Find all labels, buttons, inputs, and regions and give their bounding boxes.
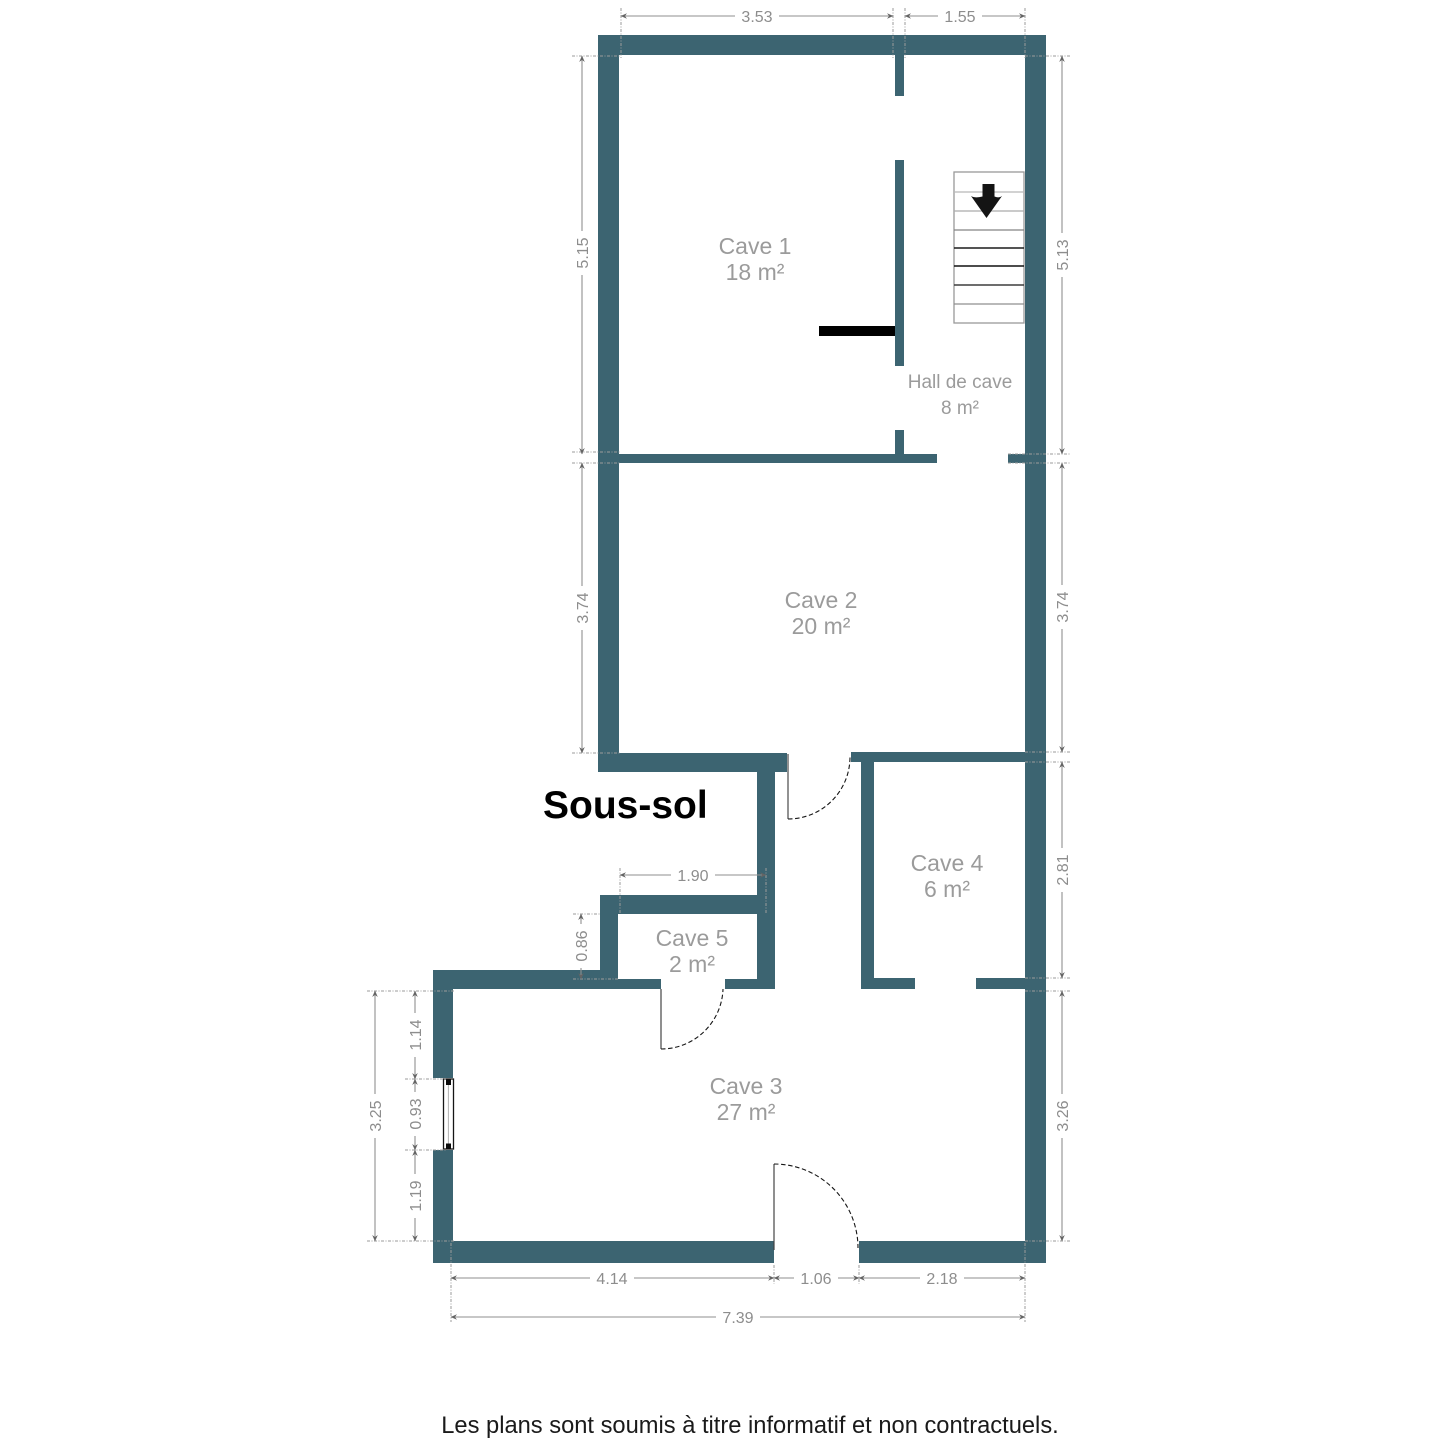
svg-text:3.74: 3.74 bbox=[575, 592, 592, 623]
svg-text:6 m²: 6 m² bbox=[924, 876, 970, 902]
svg-text:Sous-sol: Sous-sol bbox=[543, 784, 708, 827]
svg-text:3.26: 3.26 bbox=[1055, 1100, 1072, 1131]
svg-text:7.39: 7.39 bbox=[722, 1310, 753, 1327]
svg-text:2.18: 2.18 bbox=[926, 1271, 957, 1288]
svg-text:3.25: 3.25 bbox=[368, 1100, 385, 1131]
svg-text:3.53: 3.53 bbox=[741, 9, 772, 26]
svg-text:1.90: 1.90 bbox=[677, 868, 708, 885]
svg-text:1.14: 1.14 bbox=[408, 1019, 425, 1050]
svg-text:Cave 3: Cave 3 bbox=[710, 1073, 783, 1099]
svg-text:1.19: 1.19 bbox=[408, 1180, 425, 1211]
svg-text:Hall de cave: Hall de cave bbox=[908, 372, 1013, 393]
svg-text:Cave 5: Cave 5 bbox=[656, 925, 729, 951]
svg-text:5.15: 5.15 bbox=[575, 237, 592, 268]
svg-text:0.93: 0.93 bbox=[408, 1098, 425, 1129]
svg-text:Cave 1: Cave 1 bbox=[719, 233, 792, 259]
svg-text:8 m²: 8 m² bbox=[941, 398, 979, 419]
svg-text:1.06: 1.06 bbox=[800, 1271, 831, 1288]
svg-text:2.81: 2.81 bbox=[1055, 854, 1072, 885]
svg-text:1.55: 1.55 bbox=[944, 9, 975, 26]
svg-text:5.13: 5.13 bbox=[1055, 239, 1072, 270]
svg-text:Cave 4: Cave 4 bbox=[911, 850, 984, 876]
svg-text:20 m²: 20 m² bbox=[792, 613, 851, 639]
svg-text:27 m²: 27 m² bbox=[717, 1099, 776, 1125]
svg-text:18 m²: 18 m² bbox=[726, 259, 785, 285]
svg-text:Cave 2: Cave 2 bbox=[785, 587, 858, 613]
svg-text:Les plans sont soumis à titre: Les plans sont soumis à titre informatif… bbox=[441, 1413, 1059, 1439]
svg-text:2 m²: 2 m² bbox=[669, 951, 715, 977]
svg-text:4.14: 4.14 bbox=[596, 1271, 627, 1288]
svg-text:0.86: 0.86 bbox=[574, 930, 591, 961]
svg-text:3.74: 3.74 bbox=[1055, 591, 1072, 622]
